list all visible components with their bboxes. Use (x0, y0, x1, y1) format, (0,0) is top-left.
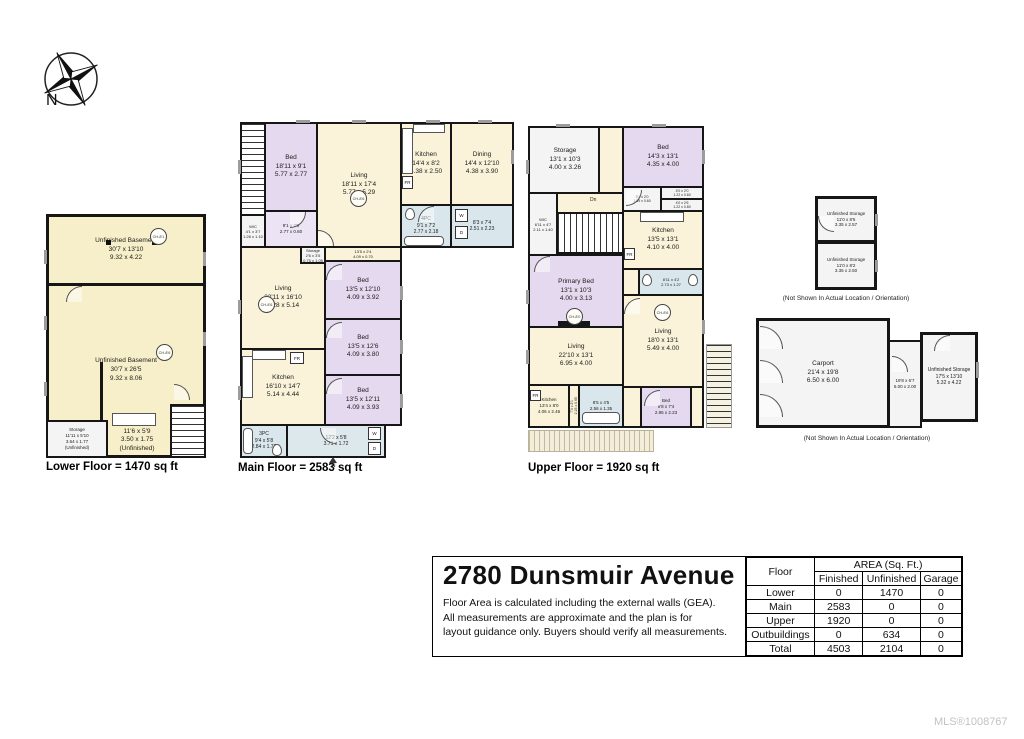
room-carport-hall: 19'8 x 6'7 6.00 x 2.00 (888, 340, 922, 428)
window (44, 382, 47, 396)
room-label: Living (351, 172, 368, 181)
room-dims-m: 3.35 x 2.50 (835, 268, 857, 274)
washer: W (455, 209, 468, 222)
ceiling-height-badge: CH-8'6 (258, 296, 275, 313)
dryer: D (368, 442, 381, 455)
table-header-row: Floor AREA (Sq. Ft.) (746, 558, 961, 572)
fridge-label: FR (627, 252, 633, 257)
room-label: Kitchen (652, 227, 674, 236)
window (702, 320, 705, 334)
caption-upper-floor: Upper Floor = 1920 sq ft (528, 462, 659, 474)
room-storage-main: Storage 2'6 x 3'5 0.75 x 1.05 (300, 246, 326, 264)
cell-unfinished: 0 (863, 614, 921, 628)
mls-number: MLS®1008767 (934, 716, 1008, 728)
room-dims-m: 2.56 x 1.35 (590, 406, 612, 412)
window (296, 120, 310, 123)
ceiling-height-badge: CH-8'6 (654, 304, 671, 321)
cell-finished: 0 (815, 628, 863, 642)
floor-plan-page: { "meta": { "mls": "MLS®1008767" }, "pal… (0, 0, 1024, 739)
kitchen-counter (252, 350, 286, 360)
room-dims-m: 2.95 x 2.23 (655, 410, 677, 416)
title-block-right: Floor AREA (Sq. Ft.) Finished Unfinished… (745, 557, 962, 656)
cell-floor: Upper (746, 614, 815, 628)
cell-floor: Main (746, 600, 815, 614)
room-dims-m: 6.00 x 2.00 (894, 384, 916, 390)
col-header-floor: Floor (746, 558, 815, 586)
bathtub-icon (582, 412, 620, 424)
room-dims-m: 5.49 x 4.00 (647, 345, 679, 354)
disclaimer-line: All measurements are approximate and the… (443, 611, 735, 626)
room-dims-m: 4.00 x 3.13 (560, 295, 592, 304)
room-dims-ft: 14'3 x 13'1 (647, 153, 678, 162)
room-dims-m: 1.22 x 0.80 (673, 205, 690, 209)
room-label: Bed (285, 154, 297, 163)
room-label: Bed (657, 144, 669, 153)
room-dims-m: 5.14 x 4.44 (267, 391, 299, 400)
kitchen-counter (402, 128, 413, 174)
window (976, 362, 979, 378)
cell-garage: 0 (920, 586, 961, 600)
structural-post (106, 240, 111, 245)
col-header-area: AREA (Sq. Ft.) (815, 558, 962, 572)
stairs-main (240, 122, 266, 216)
hall-upper-stairs (556, 192, 624, 214)
room-label: Living (275, 285, 292, 294)
sink-icon (688, 274, 698, 286)
room-dims-m: 6.95 x 4.00 (560, 360, 592, 369)
room-dims-m: 4.38 x 2.50 (410, 168, 442, 177)
room-dims-m: 1.26 x 1.10 (243, 234, 263, 239)
room-dims-m: 3.35 x 2.57 (835, 222, 857, 228)
room-dims-ft: 16'10 x 14'7 (266, 383, 301, 392)
table-row: Total 4503 2104 0 (746, 642, 961, 656)
ceiling-height-badge: CH-8'6 (350, 190, 367, 207)
cell-finished: 2583 (815, 600, 863, 614)
room-bed-main-1: Bed 18'11 x 9'1 5.77 x 2.77 (264, 122, 318, 212)
room-dims-m: 4.09 x 0.70 (353, 254, 373, 259)
window (400, 340, 403, 354)
room-dims-ft: 14'4 x 12'10 (465, 160, 500, 169)
col-header-finished: Finished (815, 572, 863, 586)
window (44, 250, 47, 264)
room-label: Unfinished Basement (95, 237, 157, 246)
room-dims-m: 3.50 x 1.75 (112, 436, 162, 444)
area-table: Floor AREA (Sq. Ft.) Finished Unfinished… (746, 557, 962, 656)
cell-garage: 0 (920, 600, 961, 614)
room-label: Living (655, 328, 672, 337)
window (526, 350, 529, 364)
washer-label: W (372, 431, 376, 436)
cell-unfinished: 2104 (863, 642, 921, 656)
window (478, 120, 492, 123)
room-dims-ft: 21'4 x 19'8 (807, 369, 838, 378)
room-note: (Unfinished) (112, 445, 162, 453)
hall-upper-bl (622, 386, 642, 428)
table-row: Main 2583 0 0 (746, 600, 961, 614)
fridge-label: FR (294, 356, 300, 361)
fridge: FR (402, 176, 413, 189)
shed-note: (Not Shown In Actual Location / Orientat… (736, 295, 956, 302)
window (875, 260, 878, 272)
window (400, 286, 403, 300)
cell-floor: Outbuildings (746, 628, 815, 642)
room-dims-m: 5.32 x 4.22 (937, 380, 962, 387)
window (352, 120, 366, 123)
room-dims-ft: 13'5 x 12'10 (346, 286, 381, 295)
toilet-icon (642, 274, 652, 286)
room-dims-m: 1.22 x 0.60 (673, 193, 690, 197)
room-living-main-1: Living 18'11 x 17'4 5.77 x 5.29 (316, 122, 402, 248)
room-dims-m: 4.09 x 3.93 (347, 404, 379, 413)
window (875, 214, 878, 226)
room-label: Storage (554, 147, 577, 156)
entry-in-label: IN (331, 463, 336, 469)
table-row: Lower 0 1470 0 (746, 586, 961, 600)
room-label: Living (568, 343, 585, 352)
room-unfinished-basement-upper: Unfinished Basement 30'7 x 13'10 9.32 x … (46, 214, 206, 286)
room-dims-ft: 13'5 x 12'11 (346, 396, 380, 405)
kitchen-counter (413, 124, 445, 133)
washer: W (368, 427, 381, 440)
cell-finished: 4503 (815, 642, 863, 656)
room-label: Unfinished Basement (95, 357, 157, 366)
bathtub-icon (404, 236, 444, 246)
toilet-icon (405, 208, 415, 220)
room-dims-ft: 13'1 x 10'3 (549, 156, 580, 165)
disclaimer-line: layout guidance only. Buyers should veri… (443, 625, 735, 640)
dryer-label: D (460, 230, 463, 235)
room-dims-m: 4.09 x 3.92 (347, 294, 379, 303)
room-dims-m: 4.10 x 4.00 (647, 244, 679, 253)
room-label: Bed (357, 334, 369, 343)
room-wic-upper: WIC 6'11 x 4'7 2.11 x 1.40 (528, 192, 558, 256)
cell-finished: 0 (815, 586, 863, 600)
room-dims-m: 2.11 x 1.40 (533, 227, 553, 232)
ceiling-height-badge: CH-8'6 (156, 344, 173, 361)
basement-closet (112, 413, 156, 426)
disclaimer: Floor Area is calculated including the e… (443, 596, 735, 640)
room-label: Bed (357, 277, 369, 286)
page-title: 2780 Dunsmuir Avenue (443, 560, 735, 591)
room-shed-storage-2: Unfinished Storage 11'0 x 8'2 3.35 x 2.5… (815, 241, 877, 290)
room-bed-upper-1: Bed 14'3 x 13'1 4.35 x 4.00 (622, 126, 704, 188)
room-label: Kitchen (272, 374, 294, 383)
room-storage-upper: Storage 13'1 x 10'3 4.00 x 3.26 (528, 126, 602, 194)
title-block-left: 2780 Dunsmuir Avenue Floor Area is calcu… (433, 557, 745, 656)
bathtub-icon (243, 428, 253, 454)
entry-in-marker: IN (320, 457, 346, 469)
room-dims-ft: 30'7 x 13'10 (109, 246, 144, 255)
room-dims-m: 2.77 x 0.60 (280, 229, 302, 235)
cell-unfinished: 0 (863, 600, 921, 614)
window (702, 150, 705, 164)
cell-garage: 0 (920, 628, 961, 642)
hall-upper-top (598, 126, 624, 194)
room-label: Dining (473, 151, 491, 160)
room-dims-ft: 18'0 x 13'1 (647, 337, 678, 346)
room-dims-ft: 11'6 x 5'9 (124, 428, 151, 435)
room-label: Kitchen (415, 151, 437, 160)
ceiling-height-badge: CH-8'0 (566, 308, 583, 325)
room-dims-ft: 13'5 x 12'6 (347, 343, 378, 352)
room-dims-m: 9.32 x 8.06 (110, 375, 142, 384)
title-block: 2780 Dunsmuir Avenue Floor Area is calcu… (432, 556, 963, 657)
washer-label: W (459, 213, 463, 218)
window (44, 316, 47, 330)
room-dims-m: 2.73 x 1.27 (661, 282, 681, 287)
ceiling-height-badge: CH-8'1 (150, 228, 167, 245)
room-note: (Unfinished) (65, 445, 89, 451)
disclaimer-line: Floor Area is calculated including the e… (443, 596, 735, 611)
north-label: N (46, 92, 58, 110)
fridge-label: FR (405, 180, 411, 185)
room-dims-m: 4.09 x 3.80 (347, 351, 379, 360)
window (511, 150, 514, 164)
cell-garage: 0 (920, 614, 961, 628)
col-header-garage: Garage (920, 572, 961, 586)
window (652, 124, 666, 127)
cell-floor: Lower (746, 586, 815, 600)
exterior-stairs (706, 344, 732, 428)
fridge: FR (290, 352, 304, 364)
room-label: Carport (812, 360, 834, 369)
stairs-lower (170, 404, 206, 458)
room-dims-ft: 14'4 x 8'2 (412, 160, 439, 169)
room-dims-m: 5.77 x 2.77 (275, 171, 307, 180)
room-dims-m: 4.00 x 3.26 (549, 164, 581, 173)
window (426, 120, 440, 123)
carport-note: (Not Shown In Actual Location / Orientat… (757, 435, 977, 442)
kitchen-counter (242, 356, 253, 398)
room-dims-ft: 13'1 x 10'3 (560, 287, 591, 296)
room-dims-ft: 18'11 x 17'4 (342, 181, 376, 190)
dryer-label: D (373, 446, 376, 451)
dryer: D (455, 226, 468, 239)
window (203, 332, 206, 346)
window (556, 124, 570, 127)
window (238, 300, 241, 314)
room-dims-ft: 22'10 x 13'1 (559, 352, 594, 361)
room-wic-main: WIC 4'1 x 3'7 1.26 x 1.10 (240, 214, 266, 248)
cell-unfinished: 634 (863, 628, 921, 642)
window (526, 290, 529, 304)
room-label: Primary Bed (558, 278, 594, 287)
kitchen-counter (640, 212, 684, 222)
room-dims-m: 2.77 x 2.18 (414, 229, 439, 236)
room-storage-lower: Storage 11'11 x 5'10 3.64 x 1.77 (Unfini… (46, 420, 108, 458)
cell-finished: 1920 (815, 614, 863, 628)
room-dims-m: 4.38 x 3.90 (466, 168, 498, 177)
room-dims-ft: 13'5 x 13'1 (647, 236, 678, 245)
hall-upper-br (690, 386, 704, 428)
fridge-label: FR (533, 393, 539, 398)
room-dims-ft: 30'7 x 26'5 (110, 366, 141, 375)
room-dims-m: 2.51 x 2.23 (470, 226, 495, 233)
toilet-icon (272, 444, 282, 456)
stairs-upper (556, 212, 624, 254)
room-dims-m: 6.50 x 6.00 (807, 377, 839, 386)
cell-garage: 0 (920, 642, 961, 656)
col-header-unfinished: Unfinished (863, 572, 921, 586)
window (238, 386, 241, 400)
room-living-upper-1: Living 22'10 x 13'1 6.95 x 4.00 (528, 326, 624, 386)
caption-lower-floor: Lower Floor = 1470 sq ft (46, 461, 178, 473)
interior-wall (100, 362, 103, 422)
table-row: Upper 1920 0 0 (746, 614, 961, 628)
room-dims-m: 0.75 x 1.05 (303, 258, 323, 263)
room-dining-main: Dining 14'4 x 12'10 4.38 x 3.90 (450, 122, 514, 206)
fridge: FR (624, 248, 635, 260)
table-row: Outbuildings 0 634 0 (746, 628, 961, 642)
room-label: Bed (357, 387, 369, 396)
fridge: FR (530, 390, 541, 401)
area-unfinished-label: 11'6 x 5'9 3.50 x 1.75 (Unfinished) (112, 428, 162, 453)
window (203, 252, 206, 266)
stairs-down-label: Dn (590, 197, 596, 203)
room-dims-m: 9.32 x 4.22 (110, 254, 142, 263)
window (400, 394, 403, 408)
room-dims-m: 4.06 x 2.46 (538, 409, 560, 415)
cell-unfinished: 1470 (863, 586, 921, 600)
room-dims-m: 4.35 x 4.00 (647, 161, 679, 170)
window (238, 160, 241, 174)
cell-floor: Total (746, 642, 815, 656)
room-dims-ft: 18'11 x 9'1 (276, 163, 307, 172)
window (526, 160, 529, 174)
deck (528, 430, 654, 452)
room-bed-upper-2: Bed 9'8 x 7'4 2.95 x 2.23 (640, 386, 692, 428)
